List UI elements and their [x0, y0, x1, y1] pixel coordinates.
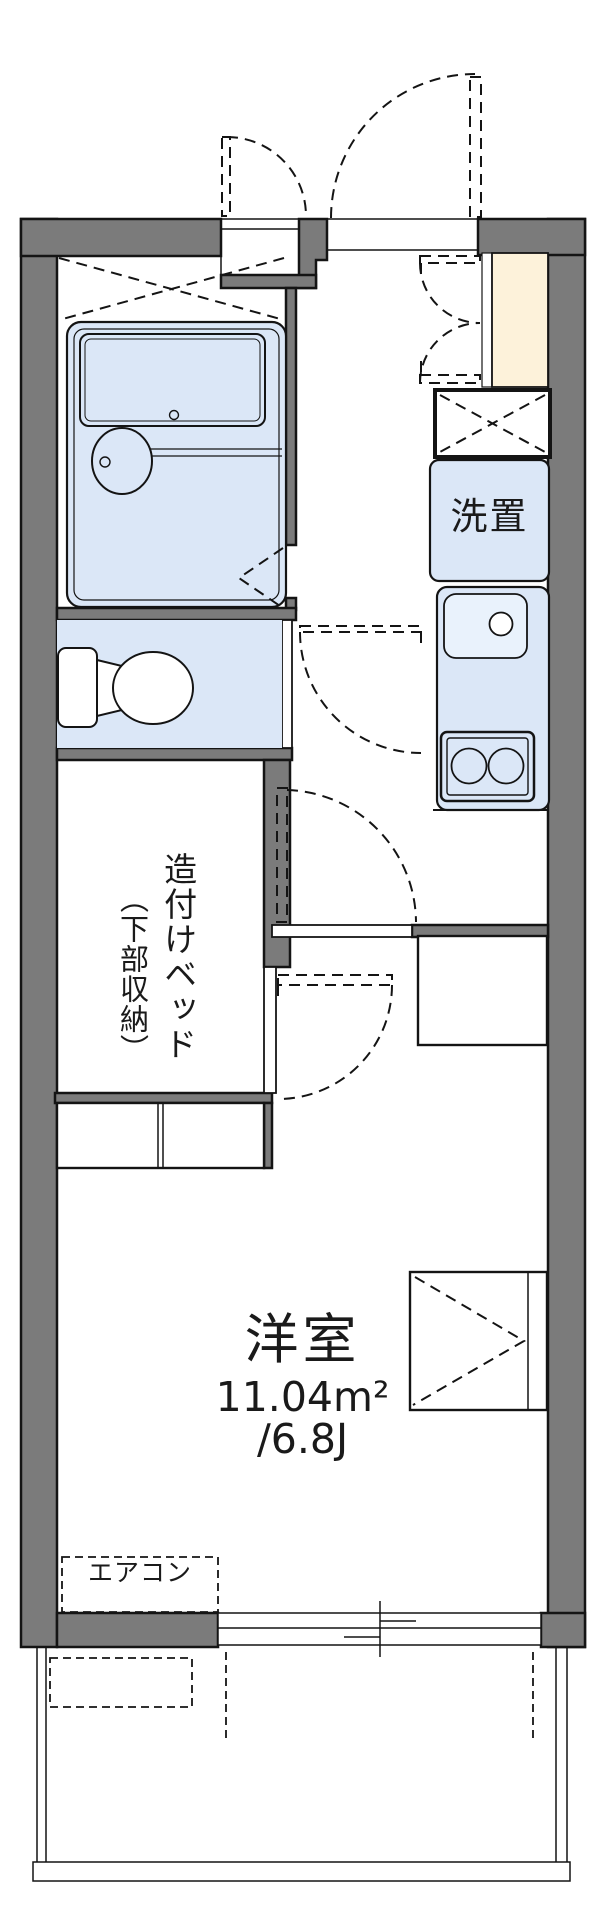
kitchen-unit: [433, 587, 549, 810]
wall-right: [548, 219, 585, 1647]
room-area-tatami-label: /6.8J: [180, 1418, 425, 1461]
wall-bottom-left: [57, 1613, 218, 1647]
balcony: [33, 1648, 570, 1881]
entrance-door-arc: [331, 74, 481, 218]
entry-closet: [420, 253, 548, 387]
storage-triangle-box: [410, 1272, 547, 1410]
kitchen-faucet: [490, 613, 513, 636]
wall-partition-thin: [272, 925, 412, 937]
laundry-space-label: 洗置: [430, 498, 549, 537]
floor-plan: 洗置 造付けベッド （下部収納） 洋室 11.04m² /6.8J エアコン: [0, 0, 604, 1920]
overhead-storage-x-box: [435, 390, 550, 457]
wall-porch-stub: [221, 275, 316, 288]
built-in-bed-label: 造付けベッド: [160, 852, 195, 1062]
wall-toilet-right-thin: [282, 620, 292, 748]
sliding-window: [218, 1601, 541, 1657]
built-in-bed-room: [57, 1103, 264, 1168]
wall-bath-right: [286, 288, 296, 545]
hall-living-door-arc: [277, 788, 416, 922]
two-burner-stove: [441, 732, 534, 801]
wall-bed-bottom: [55, 1093, 272, 1103]
bed-room-door-arc: [278, 975, 392, 1099]
balcony-rail: [33, 1862, 570, 1881]
shoe-cabinet: [492, 253, 548, 387]
small-door-arc: [222, 137, 306, 216]
bathtub: [80, 334, 265, 426]
kitchen-sink: [444, 594, 527, 658]
built-in-bed-counter: [57, 1103, 264, 1168]
small-door-leaf: [222, 137, 230, 216]
under-bed-storage-label: （下部収納）: [117, 884, 147, 1064]
double-closet-door-arc: [420, 256, 480, 383]
floor-plan-drawing: [0, 0, 604, 1920]
balcony-dashed-box: [50, 1658, 192, 1707]
wall-bottom-right: [541, 1613, 585, 1647]
toilet-bowl: [113, 652, 193, 724]
wall-counter-end: [264, 1103, 272, 1168]
wall-bath-bottom: [57, 608, 296, 620]
wall-toilet-bottom: [57, 748, 292, 760]
toilet-tank: [58, 648, 97, 727]
wall-bed-right-thin: [264, 967, 276, 1093]
closet-gap: [482, 253, 492, 387]
wall-top-left: [21, 219, 221, 256]
refrigerator-box: [418, 936, 547, 1045]
hall-doors: [277, 626, 421, 1099]
entrance-door-leaf: [470, 77, 481, 217]
washroom-door-arc: [300, 626, 421, 753]
toilet-room: [57, 620, 282, 748]
kitchen-column: [410, 390, 550, 1410]
wall-left: [21, 219, 57, 1647]
bathroom: [59, 258, 286, 608]
aircon-label: エアコン: [62, 1560, 218, 1586]
wall-top-right: [478, 219, 585, 255]
room-area-m2-label: 11.04m²: [180, 1376, 425, 1419]
room-name-label: 洋室: [180, 1312, 425, 1369]
